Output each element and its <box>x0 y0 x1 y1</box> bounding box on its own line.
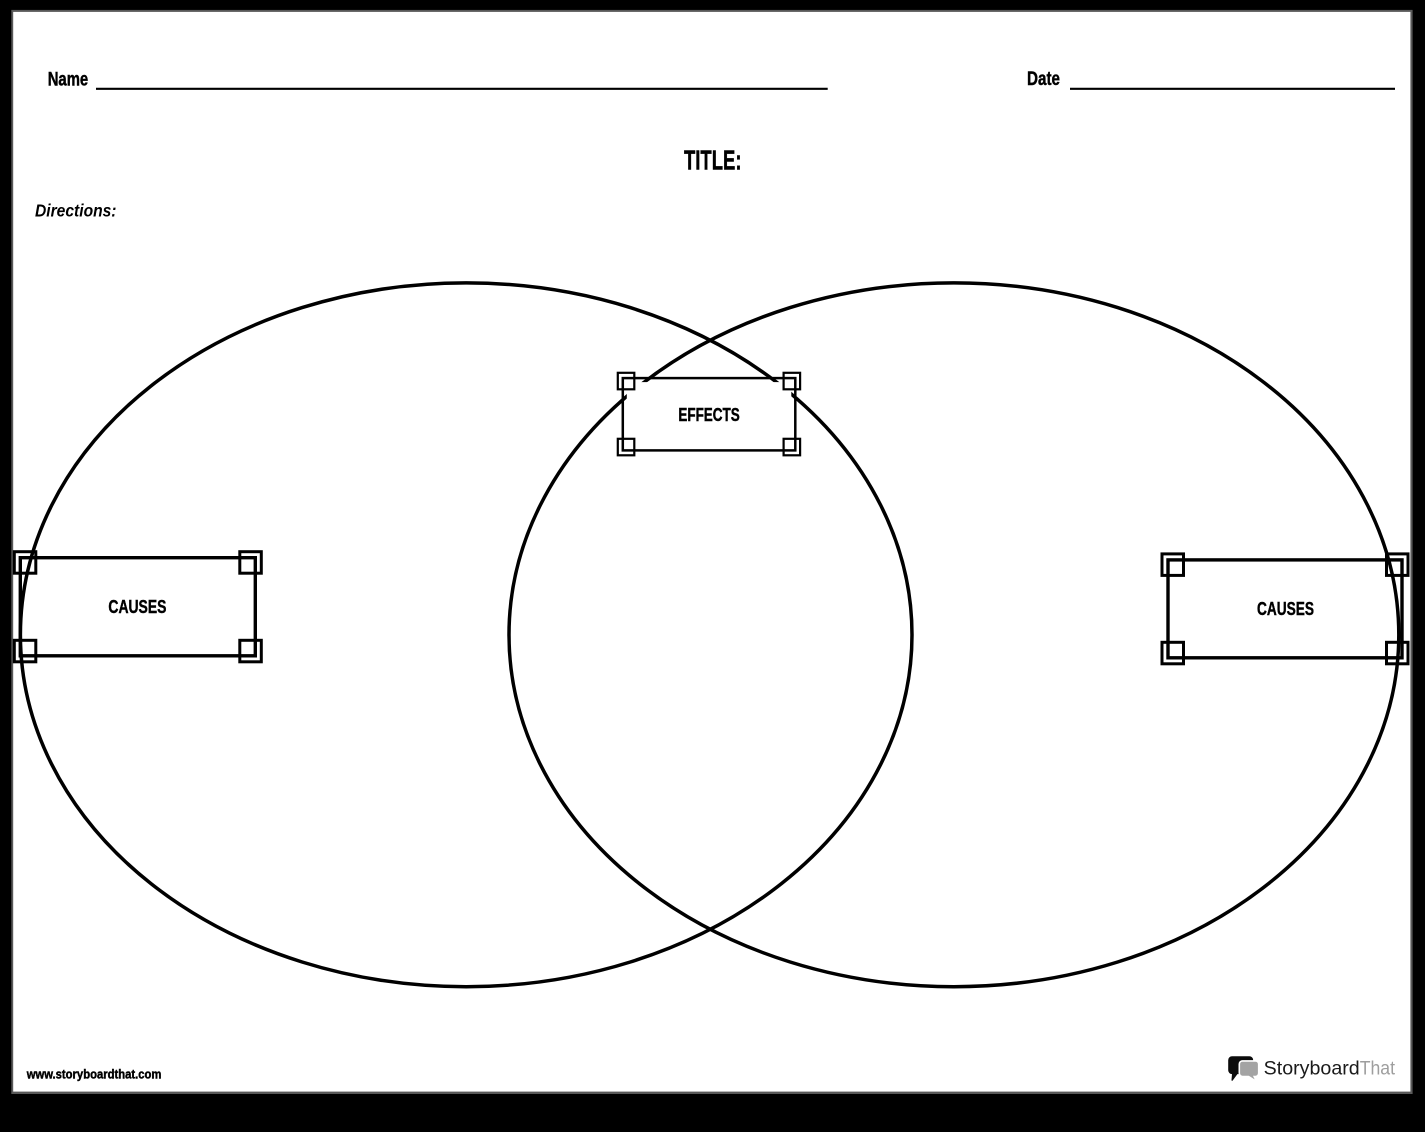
svg-text:www.storyboardthat.com: www.storyboardthat.com <box>26 1067 162 1082</box>
svg-text:CAUSES: CAUSES <box>108 596 166 617</box>
svg-text:That: That <box>1360 1058 1396 1080</box>
svg-text:CAUSES: CAUSES <box>1257 598 1314 619</box>
svg-text:Date: Date <box>1027 68 1060 90</box>
svg-text:TITLE:: TITLE: <box>684 145 742 176</box>
svg-text:Name: Name <box>48 69 89 91</box>
svg-text:Directions:: Directions: <box>35 201 117 221</box>
svg-text:EFFECTS: EFFECTS <box>678 405 739 425</box>
svg-text:Storyboard: Storyboard <box>1264 1058 1360 1080</box>
